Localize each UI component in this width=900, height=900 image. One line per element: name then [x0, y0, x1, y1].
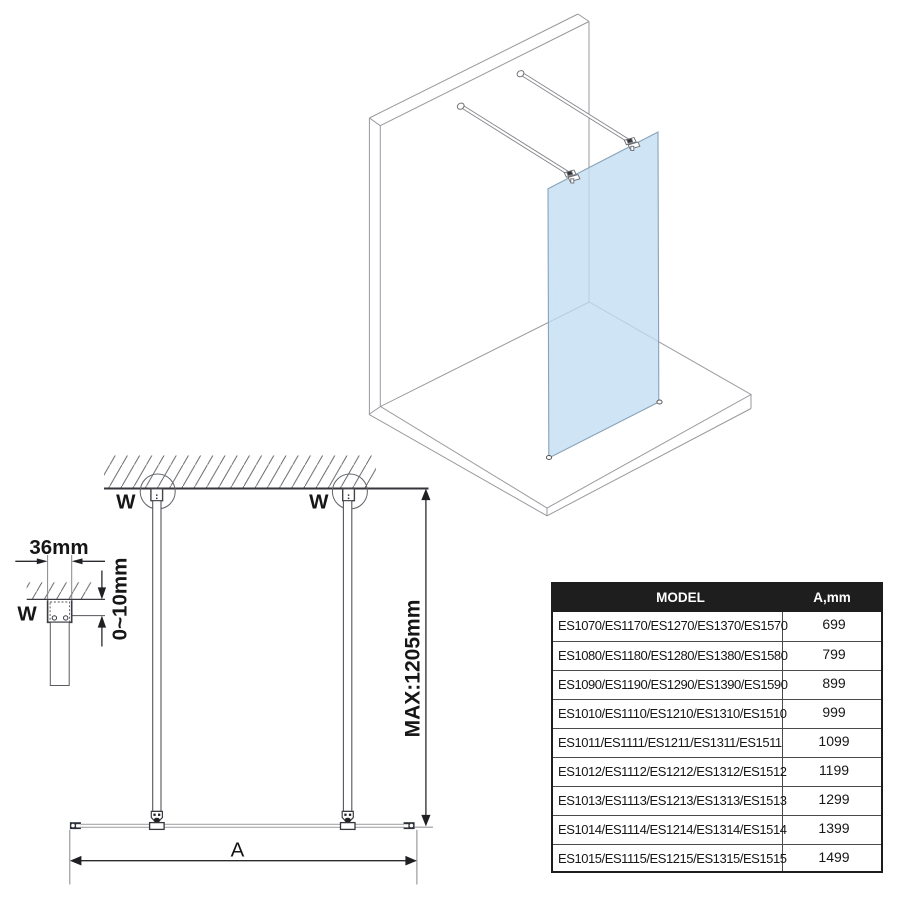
svg-text:MAX:1205mm: MAX:1205mm [402, 600, 425, 738]
svg-text:W: W [309, 490, 329, 513]
svg-text:W: W [116, 490, 136, 513]
svg-text:W: W [17, 602, 37, 625]
svg-text:0~10mm: 0~10mm [109, 558, 132, 641]
svg-text:36mm: 36mm [29, 536, 88, 559]
svg-text:A: A [231, 839, 245, 862]
